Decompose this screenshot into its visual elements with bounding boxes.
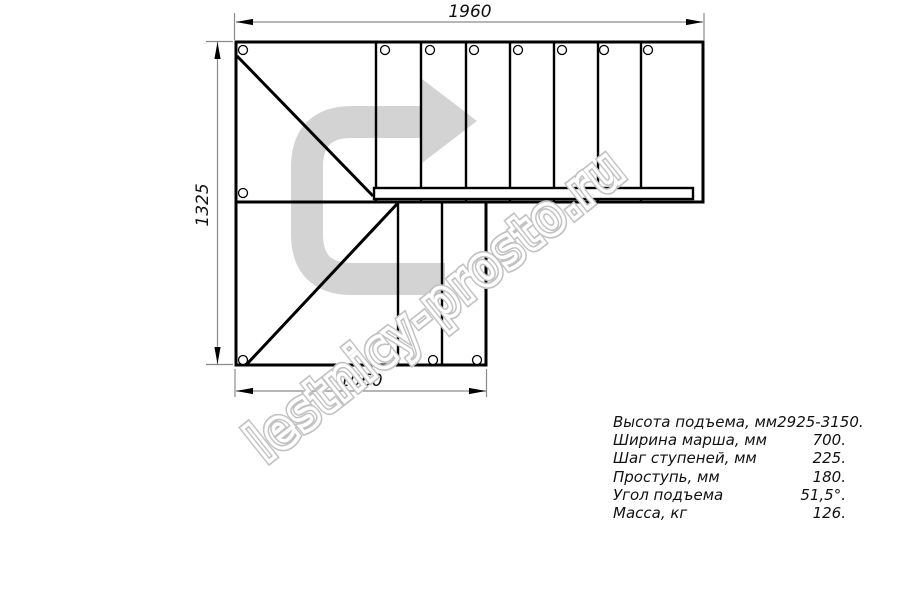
spec-label: Высота подъема, мм <box>613 413 777 431</box>
mounting-hole <box>239 46 248 55</box>
dimension-left: 1325 <box>193 42 233 365</box>
mounting-hole <box>239 356 248 365</box>
spec-row: Ширина марша, мм 700. <box>613 431 846 449</box>
dimension-arrowhead <box>236 388 253 394</box>
dimension-top-label: 1960 <box>448 2 491 22</box>
spec-value: 700. <box>813 431 846 449</box>
mounting-hole <box>644 46 653 55</box>
dimension-arrowhead <box>469 388 486 394</box>
spec-row: Угол подъема 51,5°. <box>613 486 846 504</box>
spec-value: 180. <box>813 468 846 486</box>
dimension-left-label: 1325 <box>193 183 213 226</box>
mounting-hole <box>429 356 438 365</box>
spec-table: Высота подъема, мм 2925-3150. Ширина мар… <box>613 413 846 522</box>
spec-label: Угол подъема <box>613 486 723 504</box>
spec-value: 51,5°. <box>800 486 846 504</box>
dimension-arrowhead <box>686 19 703 25</box>
mounting-hole <box>600 46 609 55</box>
dimension-arrowhead <box>236 19 253 25</box>
dimension-arrowhead <box>214 347 220 364</box>
mounting-hole <box>239 189 248 198</box>
spec-label: Шаг ступеней, мм <box>613 449 757 467</box>
direction-arrow-head <box>422 79 477 163</box>
dimension-arrowhead <box>214 42 220 59</box>
mounting-hole <box>426 46 435 55</box>
spec-label: Проступь, мм <box>613 468 720 486</box>
spec-row: Шаг ступеней, мм 225. <box>613 449 846 467</box>
spec-label: Масса, кг <box>613 504 687 522</box>
spec-row: Проступь, мм 180. <box>613 468 846 486</box>
spec-value: 225. <box>813 449 846 467</box>
mounting-hole <box>381 46 390 55</box>
mounting-hole <box>473 356 482 365</box>
spec-value: 2925-3150. <box>777 413 864 431</box>
mounting-hole <box>470 46 479 55</box>
spec-value: 126. <box>813 504 846 522</box>
mounting-hole <box>558 46 567 55</box>
spec-row: Масса, кг 126. <box>613 504 846 522</box>
u-turn-direction-arrow-icon <box>307 79 477 279</box>
spec-row: Высота подъема, мм 2925-3150. <box>613 413 846 431</box>
spec-label: Ширина марша, мм <box>613 431 767 449</box>
dimension-top: 1960 <box>235 2 705 40</box>
mounting-hole <box>514 46 523 55</box>
